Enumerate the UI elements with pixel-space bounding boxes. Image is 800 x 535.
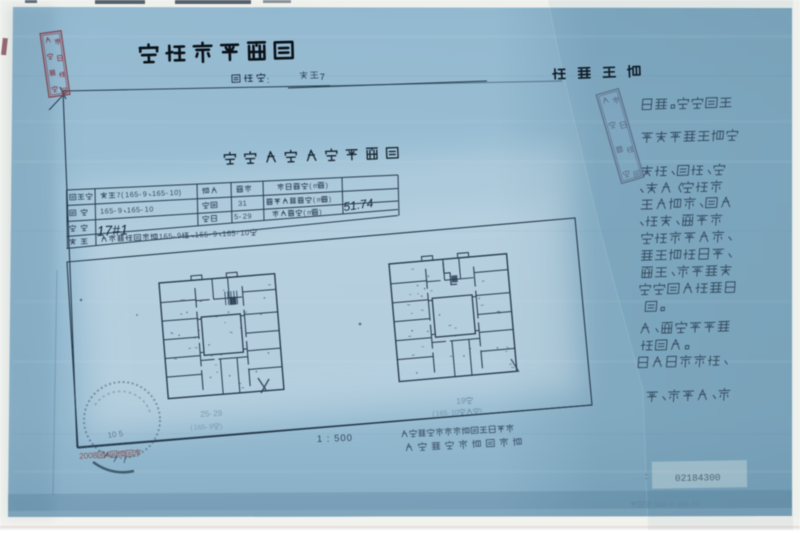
svg-text:9: 9 <box>143 189 147 198</box>
svg-text:0: 0 <box>455 409 459 417</box>
svg-text:7: 7 <box>320 72 325 82</box>
svg-text:): ) <box>220 422 223 430</box>
svg-text:0: 0 <box>245 228 250 237</box>
svg-text::: : <box>267 75 270 85</box>
svg-text:0: 0 <box>149 204 153 213</box>
svg-text:9: 9 <box>669 500 673 508</box>
svg-text:1: 1 <box>242 199 246 208</box>
svg-text:02184300: 02184300 <box>675 472 721 484</box>
svg-text:9: 9 <box>247 211 251 220</box>
svg-text:): ) <box>178 188 181 197</box>
svg-text:): ) <box>319 209 322 216</box>
svg-text:m: m <box>307 210 313 217</box>
svg-text:17#1: 17#1 <box>96 221 128 239</box>
svg-text:m: m <box>313 182 319 190</box>
svg-text:9: 9 <box>177 231 182 240</box>
svg-text::: : <box>645 471 648 481</box>
svg-text:9: 9 <box>213 229 218 238</box>
svg-text:): ) <box>329 196 332 203</box>
svg-text:9: 9 <box>118 206 122 215</box>
svg-text:m: m <box>317 197 323 204</box>
svg-text:): ) <box>480 407 483 415</box>
svg-text:1 : 500: 1 : 500 <box>317 433 353 445</box>
svg-text:9: 9 <box>209 423 213 431</box>
svg-text:): ) <box>325 181 328 189</box>
svg-text:0: 0 <box>696 500 700 508</box>
